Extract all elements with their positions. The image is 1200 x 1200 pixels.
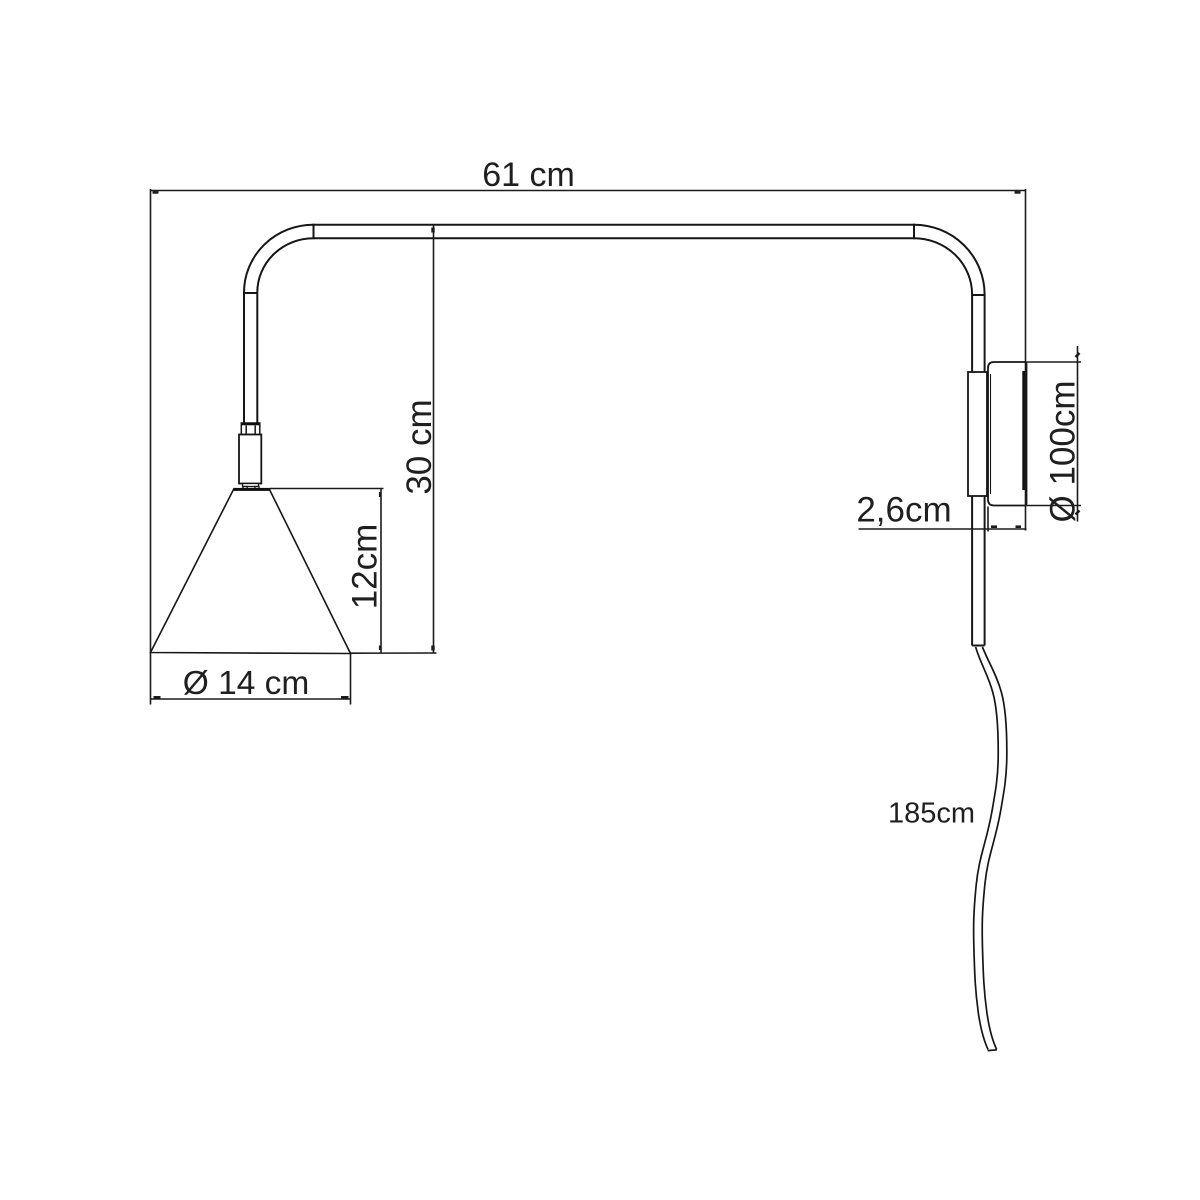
svg-text:61 cm: 61 cm <box>482 156 575 194</box>
svg-text:Ø 100cm: Ø 100cm <box>1044 381 1083 523</box>
svg-text:2,6cm: 2,6cm <box>856 491 951 530</box>
svg-text:30 cm: 30 cm <box>400 399 439 494</box>
svg-text:Ø 14 cm: Ø 14 cm <box>183 665 310 702</box>
svg-text:185cm: 185cm <box>888 798 975 830</box>
svg-text:12cm: 12cm <box>346 524 385 610</box>
